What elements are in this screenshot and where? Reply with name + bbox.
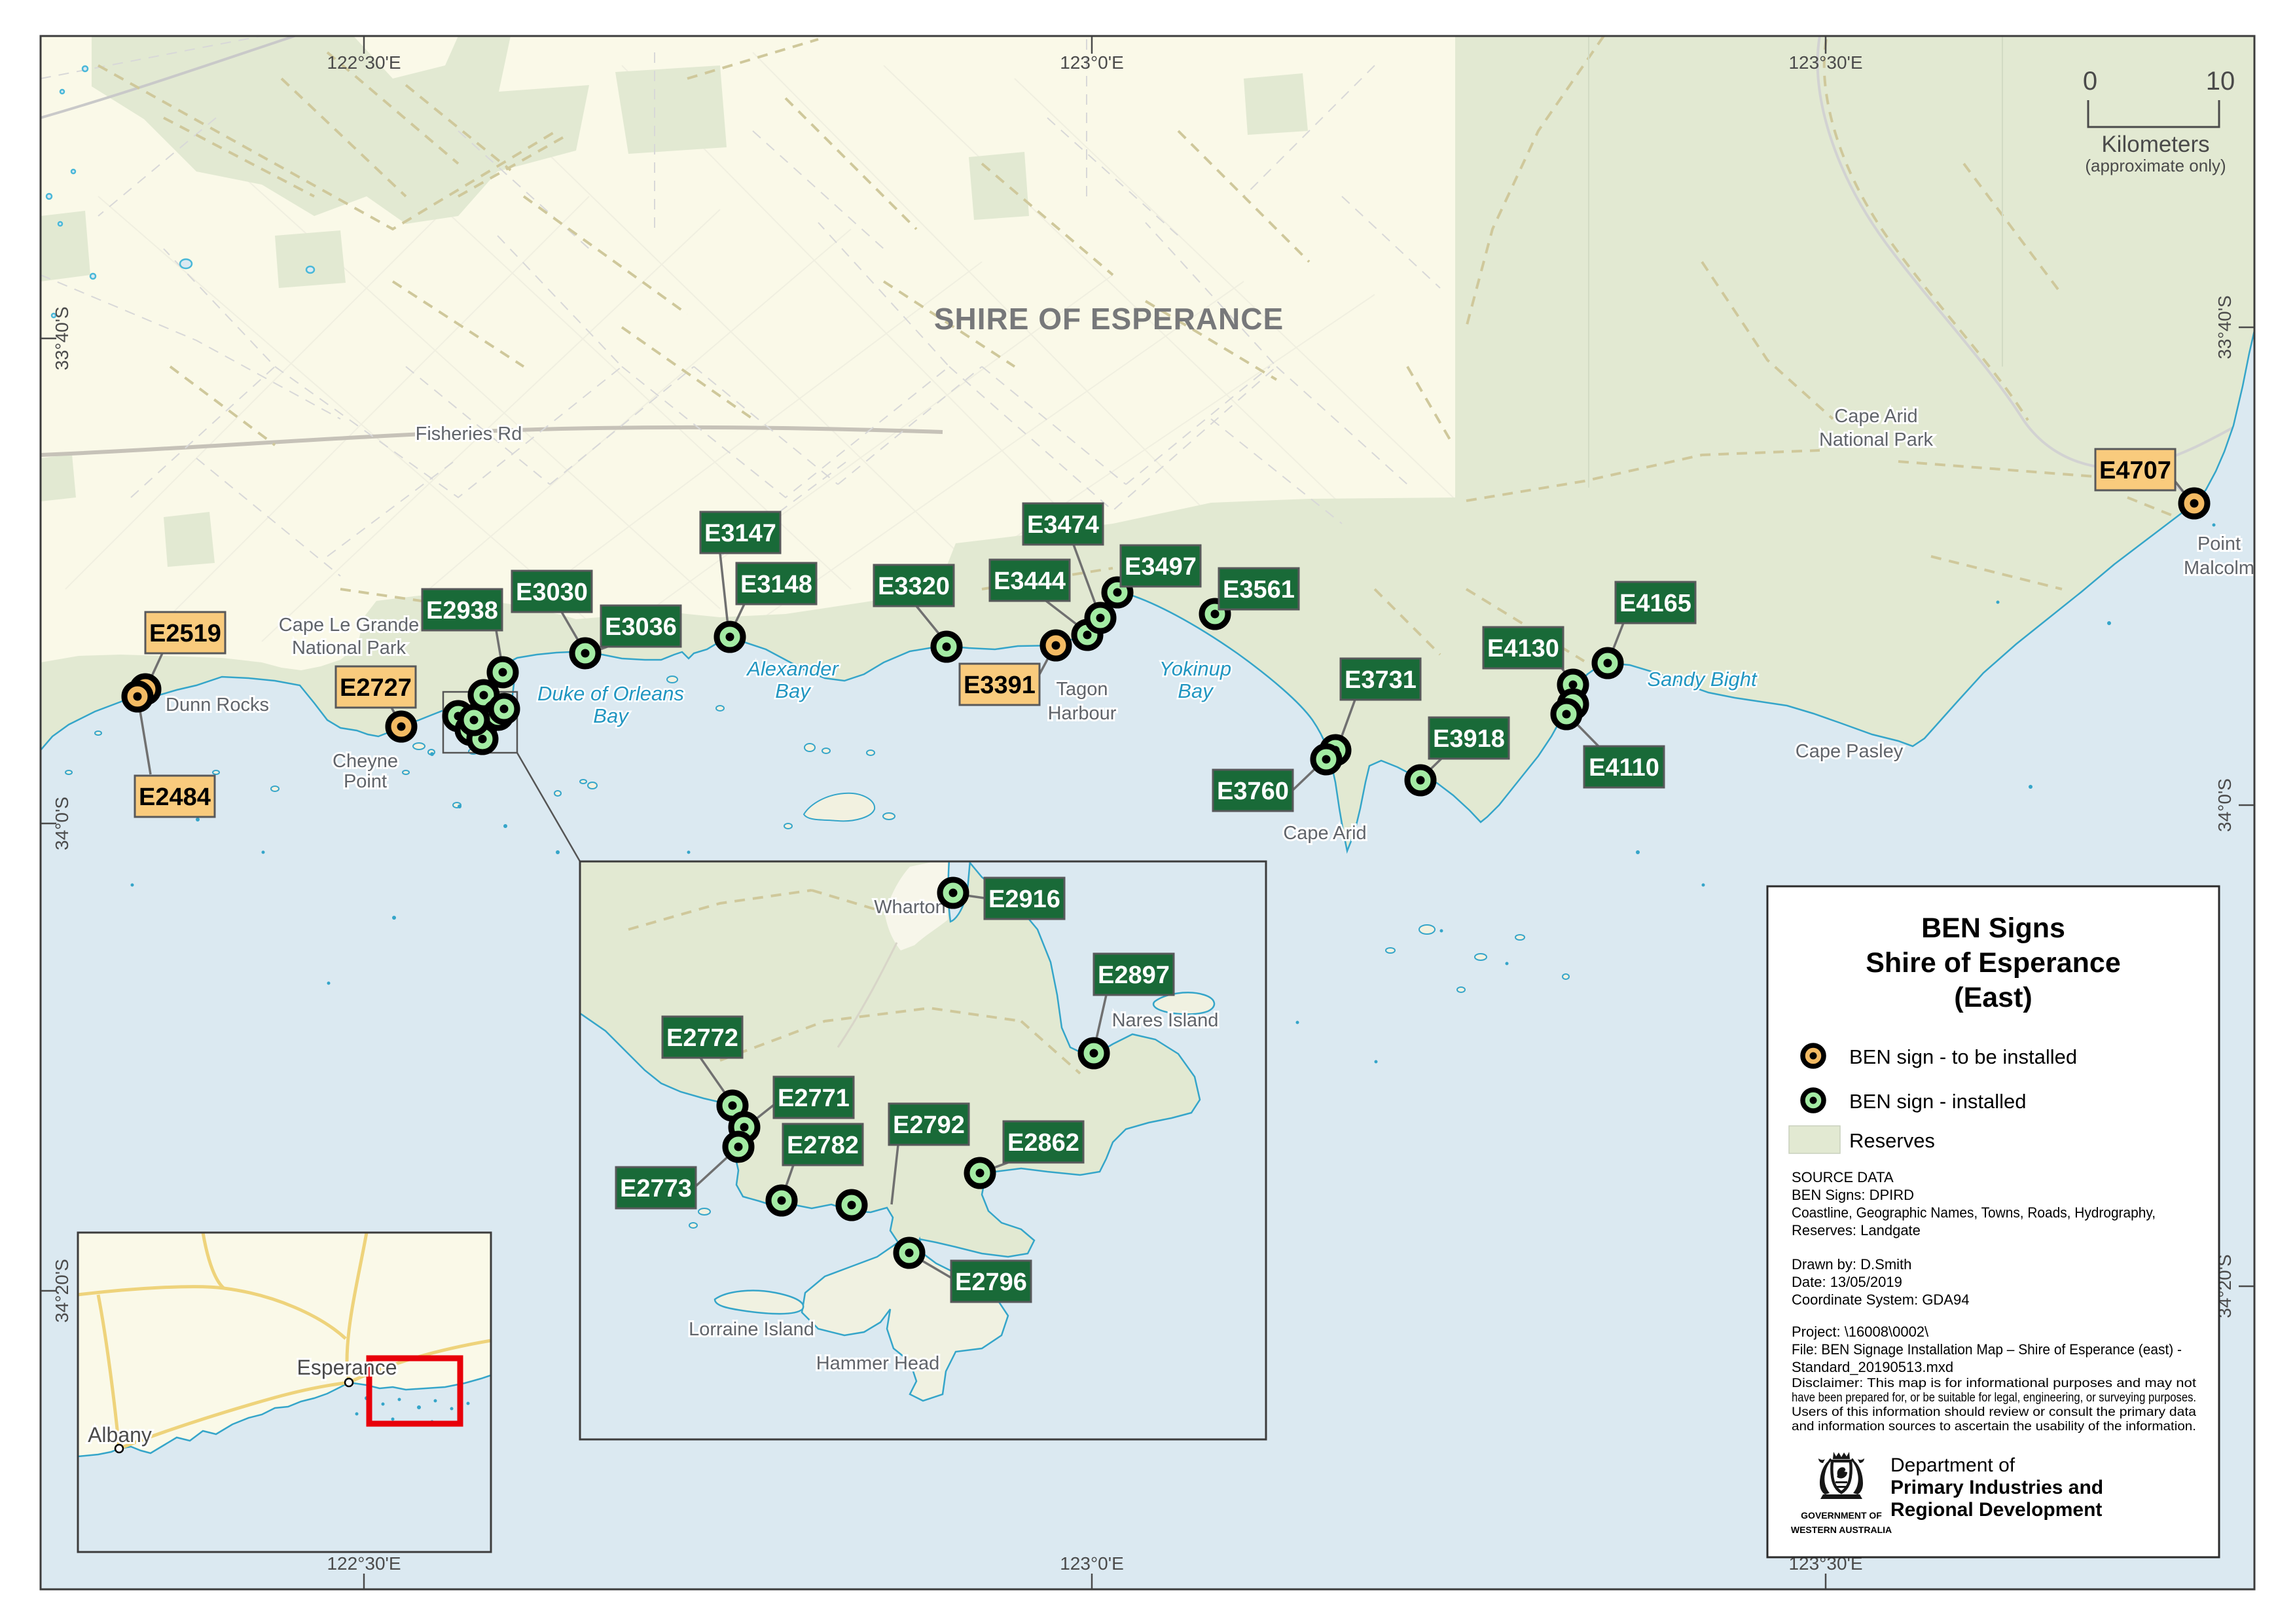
svg-text:Disclaimer: This map is fo: Disclaimer: This map is for informationa… (1792, 1377, 2197, 1390)
svg-text:Bay: Bay (593, 704, 630, 727)
svg-text:(East): (East) (1954, 982, 2032, 1013)
svg-text:E3497: E3497 (1125, 553, 1197, 581)
svg-text:have been prepared for, or be: have been prepared for, or be suitable f… (1792, 1391, 2196, 1405)
svg-text:Fisheries Rd: Fisheries Rd (416, 424, 522, 444)
svg-text:Nares Island: Nares Island (1112, 1010, 1219, 1031)
svg-text:Point: Point (344, 771, 387, 792)
svg-text:National Park: National Park (1819, 429, 1934, 450)
svg-text:123°0'E: 123°0'E (1060, 1553, 1124, 1574)
svg-text:Point: Point (2197, 533, 2241, 554)
svg-text:122°30'E: 122°30'E (327, 52, 401, 73)
svg-text:Sandy Bight: Sandy Bight (1647, 668, 1758, 691)
svg-text:Cape Arid: Cape Arid (1283, 823, 1366, 844)
svg-text:WESTERN AUSTRALIA: WESTERN AUSTRALIA (1791, 1525, 1892, 1535)
svg-text:10: 10 (2206, 67, 2235, 96)
svg-text:Wharton: Wharton (874, 897, 946, 918)
svg-text:34°0'S: 34°0'S (2214, 778, 2235, 832)
svg-text:Coordinate System: GDA94: Coordinate System: GDA94 (1792, 1291, 1969, 1308)
svg-text:Shire of Esperance: Shire of Esperance (1866, 947, 2121, 979)
svg-text:E3918: E3918 (1433, 725, 1505, 753)
svg-text:34°20'S: 34°20'S (52, 1259, 72, 1323)
svg-text:0: 0 (2083, 67, 2097, 96)
svg-text:BEN Signs: DPIRD: BEN Signs: DPIRD (1792, 1187, 1914, 1203)
svg-text:Project: \16008\0002\: Project: \16008\0002\ (1792, 1324, 1929, 1340)
svg-text:BEN sign - installed: BEN sign - installed (1849, 1090, 2027, 1113)
svg-text:E2897: E2897 (1098, 962, 1170, 989)
svg-text:Cape Le Grande: Cape Le Grande (279, 615, 419, 636)
svg-text:Alexander: Alexander (746, 657, 839, 680)
svg-text:E3760: E3760 (1217, 778, 1289, 805)
svg-text:E2771: E2771 (778, 1085, 850, 1112)
svg-text:123°30'E: 123°30'E (1788, 52, 1862, 73)
svg-text:Reserves: Reserves (1849, 1129, 1935, 1152)
svg-text:E2484: E2484 (139, 784, 211, 811)
svg-text:E3036: E3036 (605, 613, 677, 641)
svg-text:Harbour: Harbour (1048, 703, 1117, 724)
svg-text:Dunn Rocks: Dunn Rocks (166, 695, 269, 715)
svg-text:33°40'S: 33°40'S (52, 306, 72, 370)
svg-text:E2519: E2519 (149, 620, 221, 647)
svg-text:E3444: E3444 (994, 568, 1066, 595)
svg-text:E4110: E4110 (1589, 754, 1659, 782)
svg-text:Cape Pasley: Cape Pasley (1796, 741, 1904, 762)
svg-text:Users of this information: Users of this information should review … (1792, 1405, 2196, 1419)
svg-text:File: BEN Signage Installation: File: BEN Signage Installation Map – Shi… (1792, 1341, 2182, 1358)
svg-text:Standard_20190513.mxd: Standard_20190513.mxd (1792, 1359, 1953, 1375)
svg-text:E4707: E4707 (2099, 457, 2171, 484)
svg-text:E2862: E2862 (1007, 1129, 1079, 1157)
svg-text:E2772: E2772 (666, 1024, 738, 1052)
svg-text:BEN sign - to be installed: BEN sign - to be installed (1849, 1045, 2077, 1068)
svg-text:E3147: E3147 (704, 520, 776, 547)
svg-text:Bay: Bay (1178, 679, 1214, 702)
svg-text:E2938: E2938 (426, 597, 498, 624)
svg-text:122°30'E: 122°30'E (327, 1553, 401, 1574)
svg-text:Hammer Head: Hammer Head (816, 1353, 940, 1374)
svg-text:E2796: E2796 (955, 1269, 1027, 1296)
svg-text:GOVERNMENT OF: GOVERNMENT OF (1801, 1510, 1882, 1521)
svg-text:Duke of Orleans: Duke of Orleans (537, 682, 684, 705)
svg-text:Lorraine Island: Lorraine Island (689, 1319, 814, 1340)
svg-text:E3320: E3320 (878, 573, 950, 600)
svg-text:E3474: E3474 (1027, 511, 1099, 539)
svg-text:National Park: National Park (292, 638, 407, 659)
svg-text:Regional Development: Regional Development (1890, 1499, 2102, 1521)
svg-text:Reserves: Landgate: Reserves: Landgate (1792, 1222, 1921, 1238)
svg-text:Tagon: Tagon (1056, 679, 1108, 700)
svg-text:(approximate only): (approximate only) (2085, 156, 2226, 175)
svg-text:BEN Signs: BEN Signs (1921, 912, 2065, 944)
svg-text:E2782: E2782 (787, 1132, 859, 1159)
svg-text:E4165: E4165 (1619, 590, 1691, 617)
svg-text:E2727: E2727 (340, 674, 412, 702)
svg-text:Drawn by: D.Smith: Drawn by: D.Smith (1792, 1256, 1911, 1272)
svg-text:SHIRE OF ESPERANCE: SHIRE OF ESPERANCE (934, 302, 1284, 336)
svg-text:Department of: Department of (1890, 1454, 2015, 1476)
svg-text:Primary Industries and: Primary Industries and (1890, 1477, 2103, 1498)
svg-text:E2773: E2773 (620, 1175, 692, 1202)
svg-text:SOURCE DATA: SOURCE DATA (1792, 1169, 1894, 1185)
svg-text:E3030: E3030 (516, 579, 588, 606)
svg-text:Bay: Bay (775, 679, 812, 702)
svg-text:Kilometers: Kilometers (2101, 132, 2209, 157)
svg-text:33°40'S: 33°40'S (2214, 295, 2235, 359)
svg-text:E3391: E3391 (964, 672, 1036, 699)
svg-text:and information sources to: and information sources to ascertain the… (1792, 1420, 2196, 1434)
svg-text:Malcolm: Malcolm (2184, 558, 2254, 579)
svg-text:E2792: E2792 (893, 1111, 965, 1139)
svg-text:Yokinup: Yokinup (1159, 657, 1231, 680)
svg-text:123°0'E: 123°0'E (1060, 52, 1124, 73)
svg-text:E3561: E3561 (1223, 576, 1295, 604)
svg-text:Cape Arid: Cape Arid (1834, 406, 1917, 427)
svg-text:34°0'S: 34°0'S (52, 797, 72, 850)
svg-text:E3731: E3731 (1345, 666, 1417, 694)
svg-text:Date: 13/05/2019: Date: 13/05/2019 (1792, 1274, 1902, 1290)
svg-text:Albany: Albany (88, 1423, 152, 1447)
svg-text:Cheyne: Cheyne (333, 751, 398, 772)
svg-text:E2916: E2916 (988, 886, 1060, 913)
svg-text:E3148: E3148 (740, 571, 812, 598)
svg-text:Esperance: Esperance (297, 1356, 397, 1379)
svg-text:E4130: E4130 (1487, 635, 1559, 662)
svg-text:Coastline, Geographic Names, T: Coastline, Geographic Names, Towns, Road… (1792, 1204, 2156, 1221)
